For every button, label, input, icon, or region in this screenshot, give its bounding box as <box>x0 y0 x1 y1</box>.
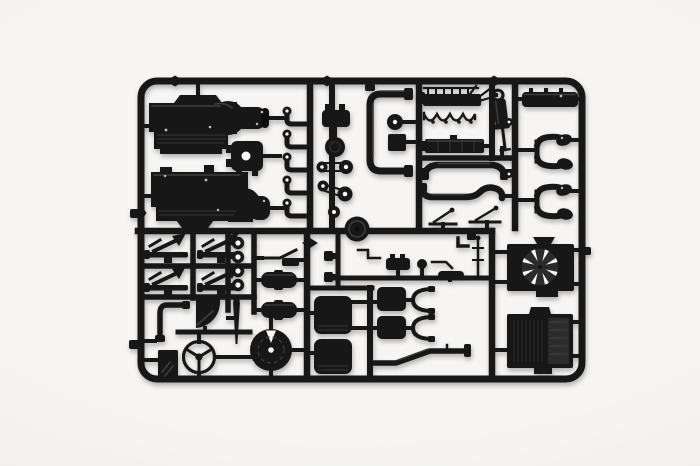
gear-lever <box>470 206 500 222</box>
radiator-core <box>507 307 573 374</box>
valve-cover <box>522 88 578 107</box>
turbo-elbow-pair <box>537 182 574 221</box>
small-cylinder <box>438 271 464 279</box>
gate-nub <box>136 205 147 221</box>
l-coolant-pipe <box>155 301 190 342</box>
radiator-fan <box>507 237 574 297</box>
seat-frame <box>413 286 435 314</box>
steering-wheel <box>184 342 215 373</box>
bushing-ring <box>232 279 244 291</box>
elbow-fitting <box>283 130 309 148</box>
small-fittings <box>324 233 483 282</box>
turbo-elbow-pair <box>537 132 574 171</box>
gear-stick <box>233 298 240 344</box>
rocker-assembly <box>417 86 493 106</box>
small-block <box>467 233 476 240</box>
bracket-arm <box>432 262 452 268</box>
elbow-fitting <box>283 199 309 217</box>
coolant-c-pipe <box>365 84 413 177</box>
gearbox-housing <box>226 141 263 176</box>
seat-cushion <box>314 339 352 374</box>
gearbox-bore <box>242 152 251 161</box>
gear-lever <box>430 208 456 224</box>
air-tank <box>261 300 297 320</box>
small-elbow <box>458 238 468 246</box>
sprue <box>129 76 591 380</box>
gate-tongue <box>581 247 591 255</box>
sprue-illustration <box>0 0 700 466</box>
leaf-spring <box>144 266 188 296</box>
brake-drum <box>250 329 292 371</box>
elbow-fitting <box>283 176 309 194</box>
gate-nub <box>166 76 184 87</box>
long-exhaust-pipe <box>419 183 502 198</box>
thin-rod <box>473 236 483 277</box>
fan-blades <box>521 248 560 287</box>
elbow-fitting <box>283 153 309 171</box>
pump-body <box>386 254 410 270</box>
distributor <box>322 104 350 127</box>
fender-quarter <box>196 299 220 328</box>
intake-manifold <box>418 135 484 153</box>
product-photo <box>0 0 700 466</box>
bushing-ring <box>232 265 244 277</box>
leaf-spring <box>144 233 188 263</box>
bracket-block <box>388 134 406 151</box>
bent-bracket <box>358 250 380 258</box>
chassis-exhaust-pipe <box>370 344 471 363</box>
elbow-fitting <box>283 107 309 125</box>
mud-flap <box>158 350 178 378</box>
seat-backrest <box>377 316 406 339</box>
mounting-bracket <box>260 250 299 266</box>
seat-frame <box>413 314 435 342</box>
elbow-fittings <box>283 107 309 217</box>
bushing-ring <box>232 251 244 263</box>
air-tank <box>261 270 297 290</box>
gasket-garland <box>424 113 475 124</box>
clutch-hub <box>345 217 370 242</box>
seat-backrest <box>377 287 406 311</box>
long-exhaust-pipe <box>421 164 508 181</box>
seat-cushion <box>314 296 352 334</box>
ball-valve <box>417 259 427 269</box>
bushing-ring <box>232 237 244 249</box>
